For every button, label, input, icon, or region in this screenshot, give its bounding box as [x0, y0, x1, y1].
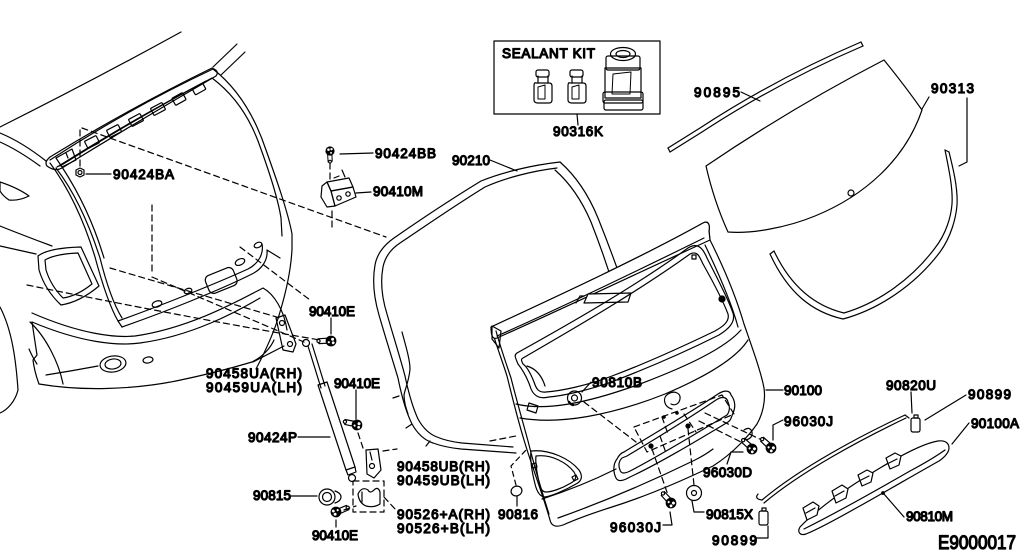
svg-text:90810B: 90810B [592, 375, 642, 390]
svg-text:90100: 90100 [784, 383, 822, 398]
svg-text:90458UB(RH): 90458UB(RH) [397, 459, 490, 474]
svg-text:96030D: 96030D [703, 465, 752, 480]
svg-text:90899: 90899 [968, 387, 1011, 402]
svg-text:90526+B(LH): 90526+B(LH) [397, 521, 490, 536]
svg-text:90424BB: 90424BB [375, 146, 436, 161]
svg-text:90424P: 90424P [248, 430, 297, 445]
svg-text:90459UA(LH): 90459UA(LH) [206, 380, 302, 395]
svg-text:90459UB(LH): 90459UB(LH) [397, 473, 490, 488]
svg-text:90410M: 90410M [373, 184, 423, 199]
svg-text:90100A: 90100A [971, 416, 1019, 431]
svg-text:90458UA(RH): 90458UA(RH) [206, 366, 302, 381]
svg-text:90815: 90815 [253, 488, 291, 503]
svg-text:90410E: 90410E [334, 376, 380, 391]
svg-text:90526+A(RH): 90526+A(RH) [397, 507, 490, 522]
svg-text:90313: 90313 [931, 81, 974, 96]
svg-text:SEALANT KIT: SEALANT KIT [502, 46, 595, 61]
svg-text:96030J: 96030J [784, 414, 833, 429]
svg-text:90410E: 90410E [309, 304, 355, 319]
svg-text:90816: 90816 [498, 507, 538, 522]
svg-text:E9000017: E9000017 [938, 533, 1016, 554]
svg-text:90210: 90210 [452, 153, 490, 168]
svg-text:90820U: 90820U [886, 378, 936, 393]
svg-text:90815X: 90815X [706, 507, 753, 522]
svg-text:90424BA: 90424BA [113, 167, 174, 182]
svg-text:90810M: 90810M [906, 509, 953, 524]
svg-text:90895: 90895 [694, 85, 740, 100]
svg-text:90899: 90899 [712, 533, 757, 548]
svg-text:90410E: 90410E [312, 528, 358, 543]
svg-text:90316K: 90316K [553, 124, 603, 139]
